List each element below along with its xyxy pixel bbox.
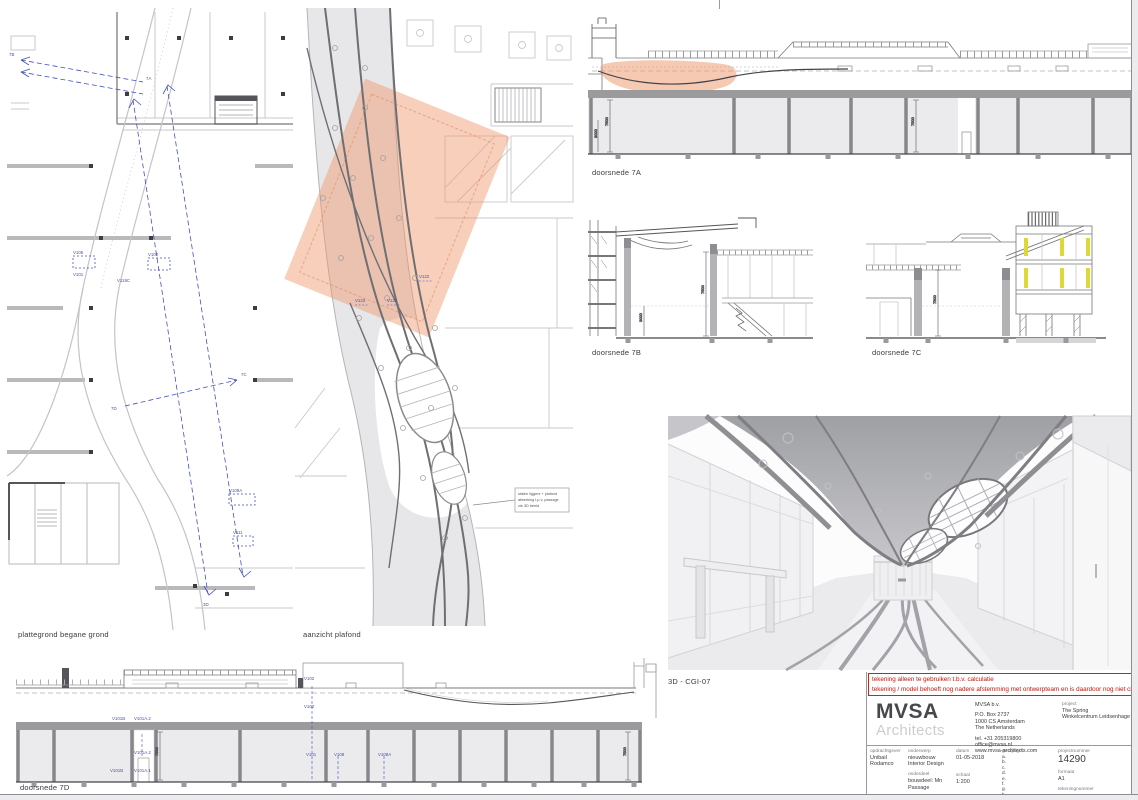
field-gewijzigd: gewijzigd a. b. c. d. e. f. g. h. [1002,749,1052,798]
field-project-group: projectnummer 14290 formaat A1 tekeningn… [1058,749,1132,800]
warning-box: tekening alleen te gebruiken t.b.v. calc… [868,673,1134,696]
opdrachtgever-value: Unibail Rodamco [870,755,906,767]
plan-tag-v102: V102 [148,252,159,257]
ceiling-label: aanzicht plafond [303,630,361,639]
section7a-dim-7500: 7500 [604,116,609,126]
section7d-tag-v102-mid: V102 [304,704,315,709]
section7c-left-wing [866,244,961,336]
section7c-tower [1016,212,1092,336]
section7c-piers [914,268,1010,336]
logo-line1: MVSA [876,701,945,722]
section7b-left-facade [588,220,616,336]
field-opdrachtgever: opdrachtgever Unibail Rodamco [870,749,906,767]
project-location: Winkelcentrum Leidsenhage [1062,714,1130,720]
section7d-tag-v108a: V108A [378,752,391,757]
section7a-slab [588,90,1134,98]
render-3d-label: 3D - CGI-07 [668,677,711,686]
section7d-tag-v101b-bottom: V101B [110,768,123,773]
section7d-tag-v101b-top: V101B [112,716,125,721]
plan-tag-v119c: V119C [117,278,130,283]
field-onderwerp-group: onderwerp nieuwbouw Interior Design onde… [908,749,954,800]
warning-line2: tekening / model behoeft nog nadere afst… [872,685,1130,695]
section7a-feet [618,154,1108,159]
field-datum-group: datum 01-05-2018 schaal 1:200 status Sta… [956,749,998,800]
floor-plan-drawing: V105 V101 V102 V119C V109A V111 7A 7B 7C… [5,8,293,630]
ceiling-tag-v123: V123 [355,298,366,303]
plan-passage-curves [7,8,205,630]
section7d-tag-v101a2-top: V101A.2 [134,716,151,721]
ceiling-tag-v124: V124 [387,298,398,303]
section7b-dims: 7500 3000 [638,252,709,336]
section7a-highlight-orange [600,60,736,93]
section7d-dim-7500a: 7500 [154,746,159,756]
section7a-door-gap [958,98,975,154]
section-7d-drawing: V101B V101A.2 V101A.2 V101B V101A.1 V102… [16,656,664,790]
plan-top-wall [117,12,293,124]
section7a-dim-7500b: 7500 [910,116,915,126]
section7d-tag-v108: V108 [334,752,345,757]
plan-tag-v101: V101 [73,272,84,277]
ceiling-note-line1: stalen liggers + plafond [518,492,557,496]
section7d-tag-v102-top: V102 [304,676,315,681]
ceiling-note-line2: afwerking t.p.v. passage [518,498,559,502]
section7b-dim-7500: 7500 [700,284,705,294]
ceiling-plan-drawing: stalen liggers + plafond afwerking t.p.v… [295,8,573,626]
section7c-dim-7500: 7500 [932,294,937,304]
section7d-feet [34,782,634,787]
sheet-bottom-edge [0,794,1138,800]
ceiling-annotation: stalen liggers + plafond afwerking t.p.v… [473,488,569,512]
section7b-feet [628,338,770,343]
3d-render [668,416,1131,670]
sheet-right-edge [1131,0,1138,800]
projectnummer-value: 14290 [1058,755,1132,765]
section-7d-label: doorsnede 7D [20,783,70,792]
fold-mark [719,0,720,9]
plan-tag-v105: V105 [73,250,84,255]
logo-line2: Architects [876,723,945,738]
plan-marker-7d: 7D [111,406,117,411]
section7c-skylight [926,234,1016,242]
section7d-wall [16,730,642,782]
section7d-dim-7500b: 7500 [622,746,627,756]
warning-line1: tekening alleen te gebruiken t.b.v. calc… [872,675,1130,685]
plan-label: plattegrond begane grond [18,630,109,639]
render-right-panel [1073,416,1131,670]
section7a-dim-3000: 3000 [593,128,598,138]
section7b-ceiling-blades [630,237,692,249]
section7c-diagonal-roof [1006,226,1084,260]
section-7b-label: doorsnede 7B [592,348,641,357]
plan-marker-7a: 7A [146,76,151,81]
titleblock-left-border [866,672,867,794]
plan-stair-block [215,96,257,124]
section7d-tag-v101a1: V101A.1 [134,768,151,773]
plan-tag-v109a: V109A [229,488,242,493]
section-7b-drawing: 7500 3000 [588,210,813,352]
ceiling-tag-v122: V122 [419,274,430,279]
section-7a-label: doorsnede 7A [592,168,641,177]
section7d-shaft [134,730,154,782]
plan-marker-3d: 3D [203,602,209,607]
plan-marker-7c: 7C [241,372,247,377]
section7c-dims: 7500 [932,270,941,336]
plan-marker-7b: 7B [9,52,14,57]
section-7c-drawing: 7500 [866,210,1106,352]
section7a-wall [588,98,1134,154]
section-7c-label: doorsnede 7C [872,348,922,357]
section7c-base [1016,338,1096,343]
section7d-tag-v101a2-mid: V101A.2 [134,750,151,755]
section7d-slab [16,722,642,730]
section7b-right-structure [631,250,813,336]
project-info: project The Spring Winkelcentrum Leidsen… [1062,702,1130,721]
onderdeel-value: bouwdeel: Mn Passage [908,778,954,790]
plan-dark-wall [9,483,65,540]
section7b-roof [616,218,756,236]
plan-column-squares [89,38,285,594]
section7d-tag-v101: V101 [306,752,317,757]
plan-tag-v111: V111 [233,530,243,535]
mvsa-logo: MVSA Architects [876,701,945,738]
ceiling-note-line3: zie 3D beeld [518,504,539,508]
company-info: MVSA b.v. P.O. Box 2737 1000 CS Amsterda… [975,702,1037,755]
section7b-dim-3000: 3000 [638,312,643,322]
ceiling-stair [495,88,541,122]
section-7a-drawing: 7500 7500 3000 [588,14,1134,166]
